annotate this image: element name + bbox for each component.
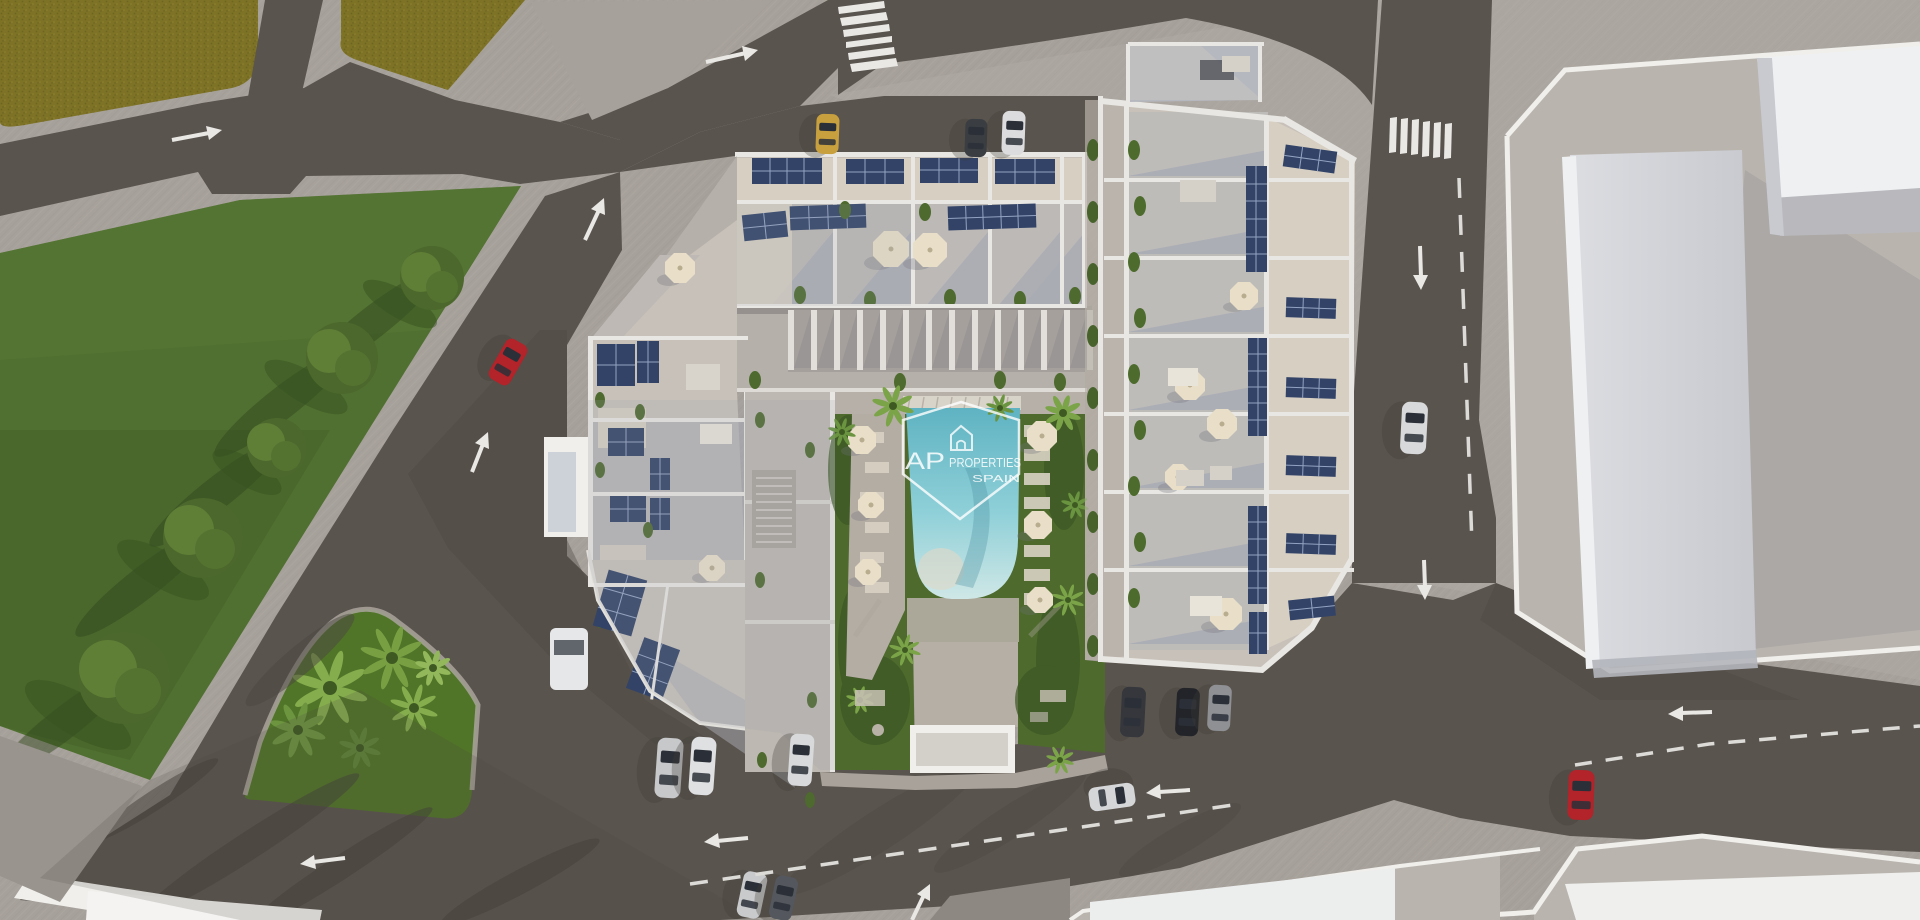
svg-text:AP: AP: [905, 448, 945, 475]
svg-text:PROPERTIES: PROPERTIES: [949, 456, 1021, 470]
svg-text:SPAIN: SPAIN: [972, 474, 1020, 485]
